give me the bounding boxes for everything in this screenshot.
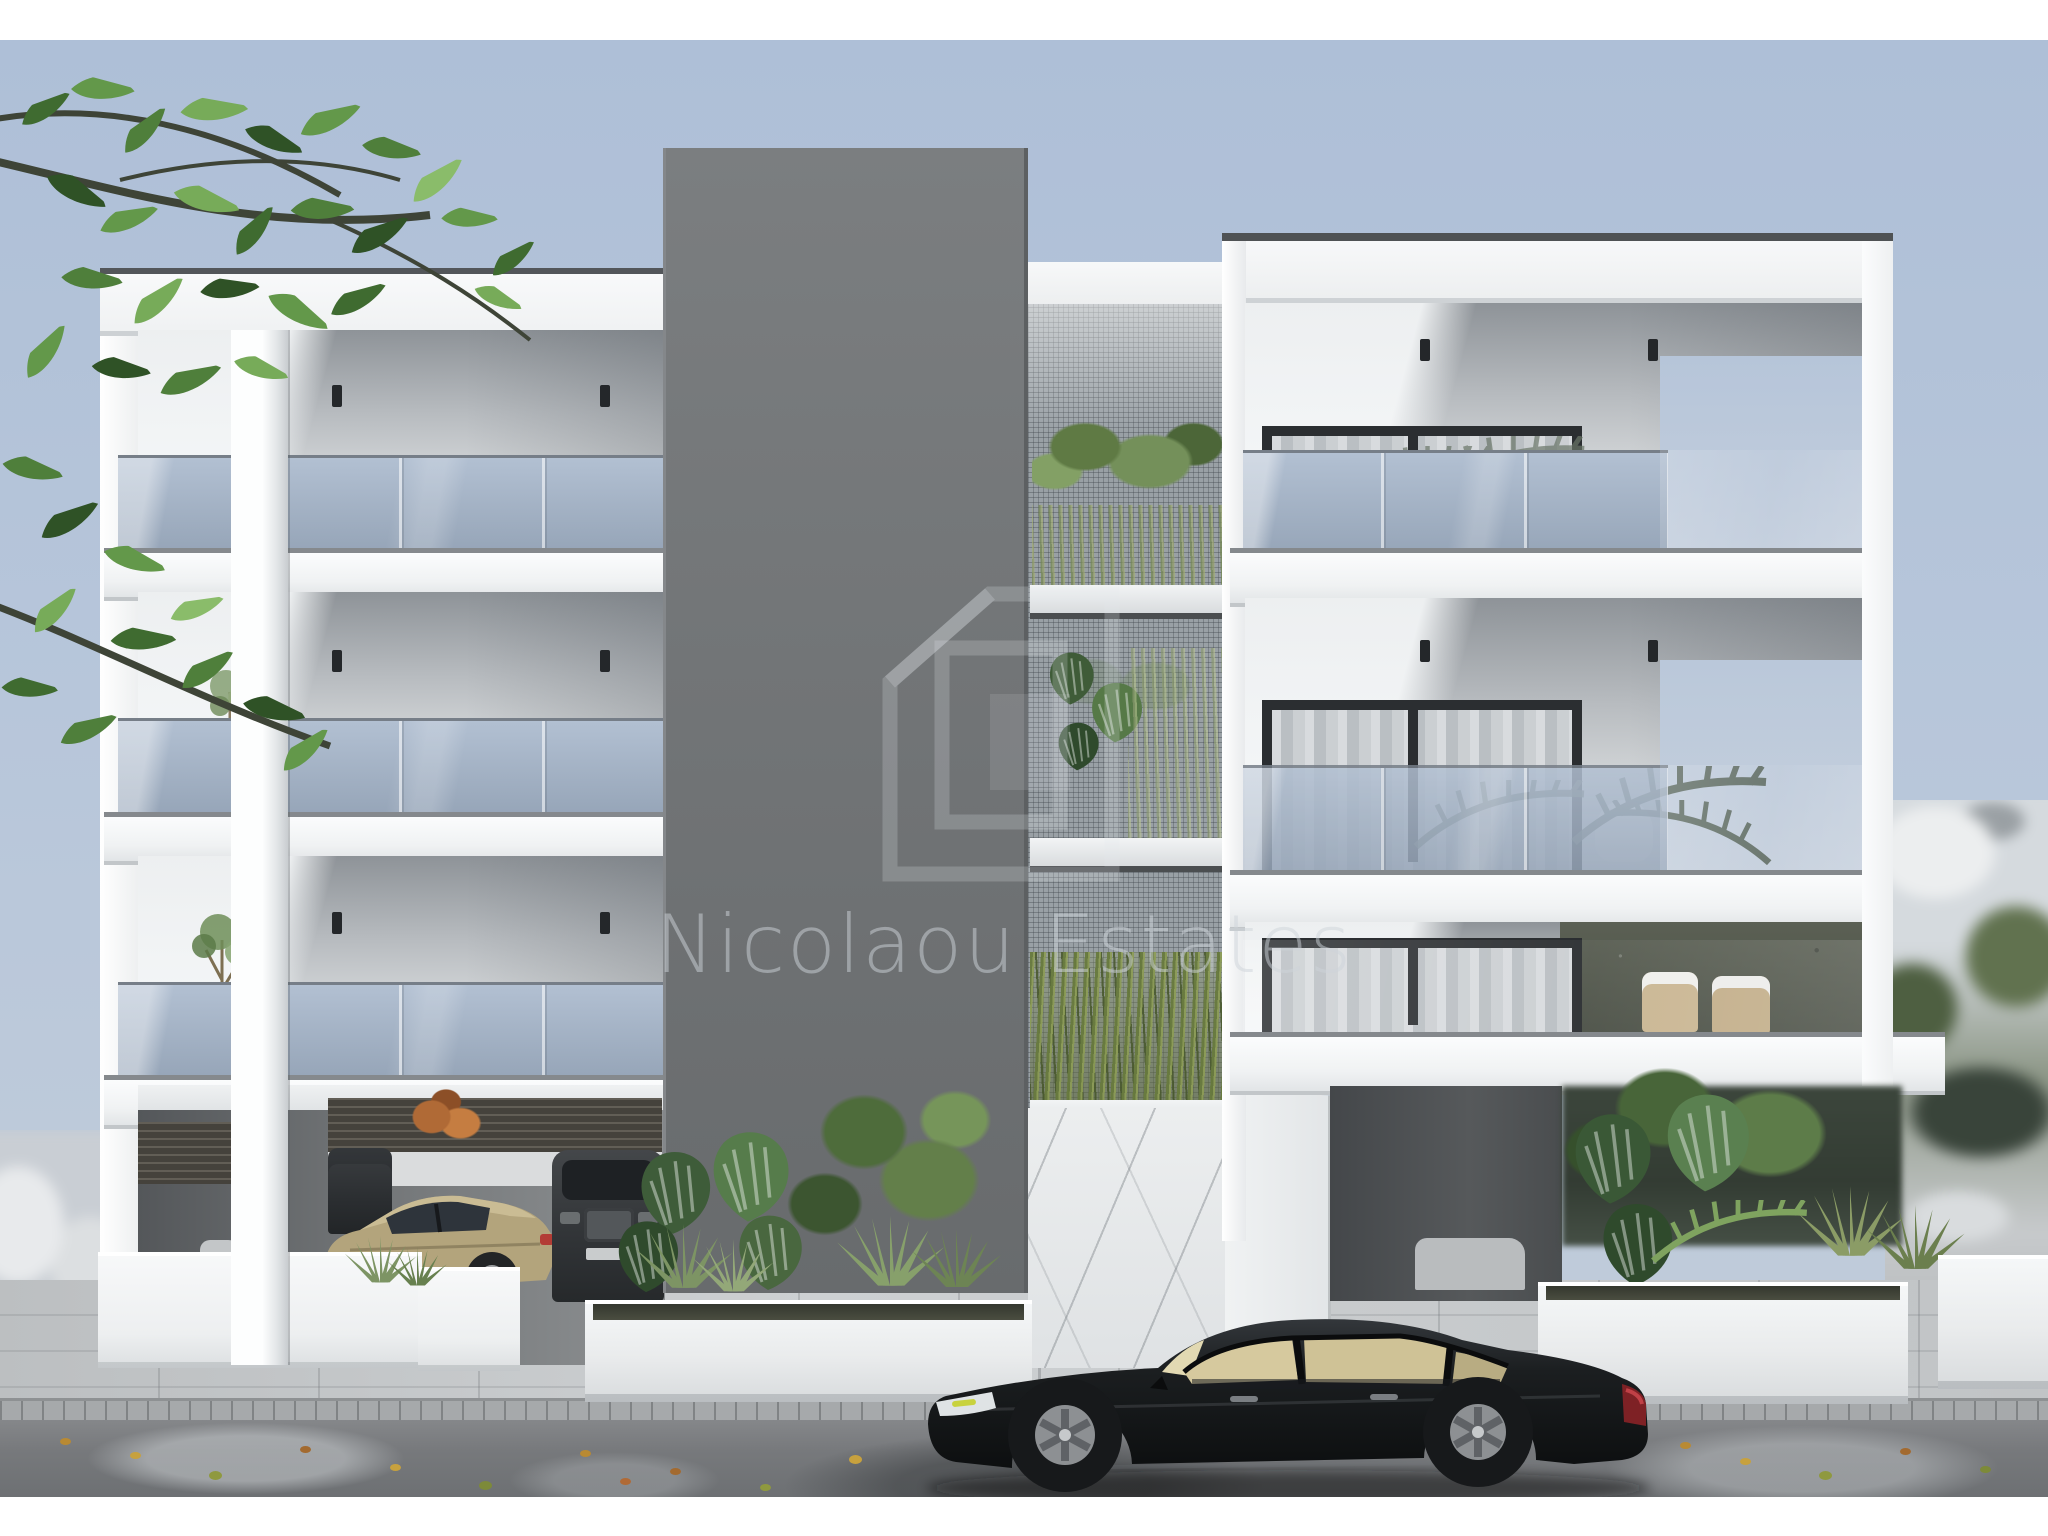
grass-cluster-left bbox=[340, 1226, 450, 1296]
agave-shapes bbox=[837, 1216, 1001, 1287]
right-f3-corner-glass bbox=[1660, 450, 1862, 550]
green-wall-foliage-top bbox=[1032, 398, 1222, 520]
suv-headlight bbox=[560, 1212, 580, 1224]
render-canvas: Nicolaou Estates bbox=[0, 0, 2048, 1536]
timber-fence-left bbox=[138, 1122, 236, 1184]
mesh-top-band bbox=[1028, 262, 1225, 306]
right-f2-corner-glass bbox=[1660, 765, 1862, 872]
planter-sill-top bbox=[1030, 585, 1222, 619]
agave-shapes bbox=[345, 1236, 447, 1285]
hanging-vines-mid bbox=[1128, 648, 1222, 853]
right-f3-glass-balustrade bbox=[1243, 450, 1668, 555]
fallen-leaves-right bbox=[1680, 1442, 1691, 1449]
agave-left bbox=[628, 1212, 778, 1304]
silver-car-under-building bbox=[1415, 1238, 1525, 1290]
tall-grass-wall bbox=[1030, 952, 1222, 1108]
right-parking-undercroft bbox=[1330, 1086, 1562, 1301]
left-f1-glass-balustrade bbox=[118, 982, 668, 1078]
far-right-planter-box bbox=[1938, 1255, 2048, 1389]
car-taillight bbox=[1622, 1384, 1646, 1426]
autumn-shrub bbox=[398, 1088, 494, 1152]
agave-shapes bbox=[635, 1224, 774, 1291]
foreground-black-sedan bbox=[900, 1292, 1660, 1507]
car-front-wheel bbox=[1008, 1378, 1122, 1492]
ceiling-light-slit bbox=[1420, 339, 1430, 361]
branches bbox=[0, 113, 530, 746]
letterbox-top bbox=[0, 0, 2048, 40]
planter-sill-mid bbox=[1030, 838, 1222, 872]
right-f1-glass-balustrade bbox=[1243, 940, 1862, 1036]
right-f2-glass-balustrade bbox=[1243, 765, 1668, 875]
right-fascia-band bbox=[1222, 241, 1893, 303]
car-rear-wheel bbox=[1423, 1377, 1533, 1487]
leaves bbox=[1, 68, 541, 774]
ceiling-light-slit bbox=[1420, 640, 1430, 662]
monstera-cluster-right bbox=[1530, 1080, 1810, 1310]
fallen-leaves-left bbox=[60, 1438, 71, 1445]
tree-branches bbox=[0, 40, 640, 820]
letterbox-bottom bbox=[0, 1497, 2048, 1536]
ceiling-light-slit bbox=[1648, 640, 1658, 662]
ceiling-light-slit bbox=[600, 912, 610, 934]
ceiling-light-slit bbox=[1648, 339, 1658, 361]
agave-right bbox=[830, 1196, 1010, 1302]
ceiling-light-slit bbox=[332, 912, 342, 934]
monstera-leaves bbox=[1576, 1095, 1807, 1286]
right-end-fin bbox=[1862, 241, 1893, 1086]
car-door-handle bbox=[1230, 1396, 1258, 1402]
